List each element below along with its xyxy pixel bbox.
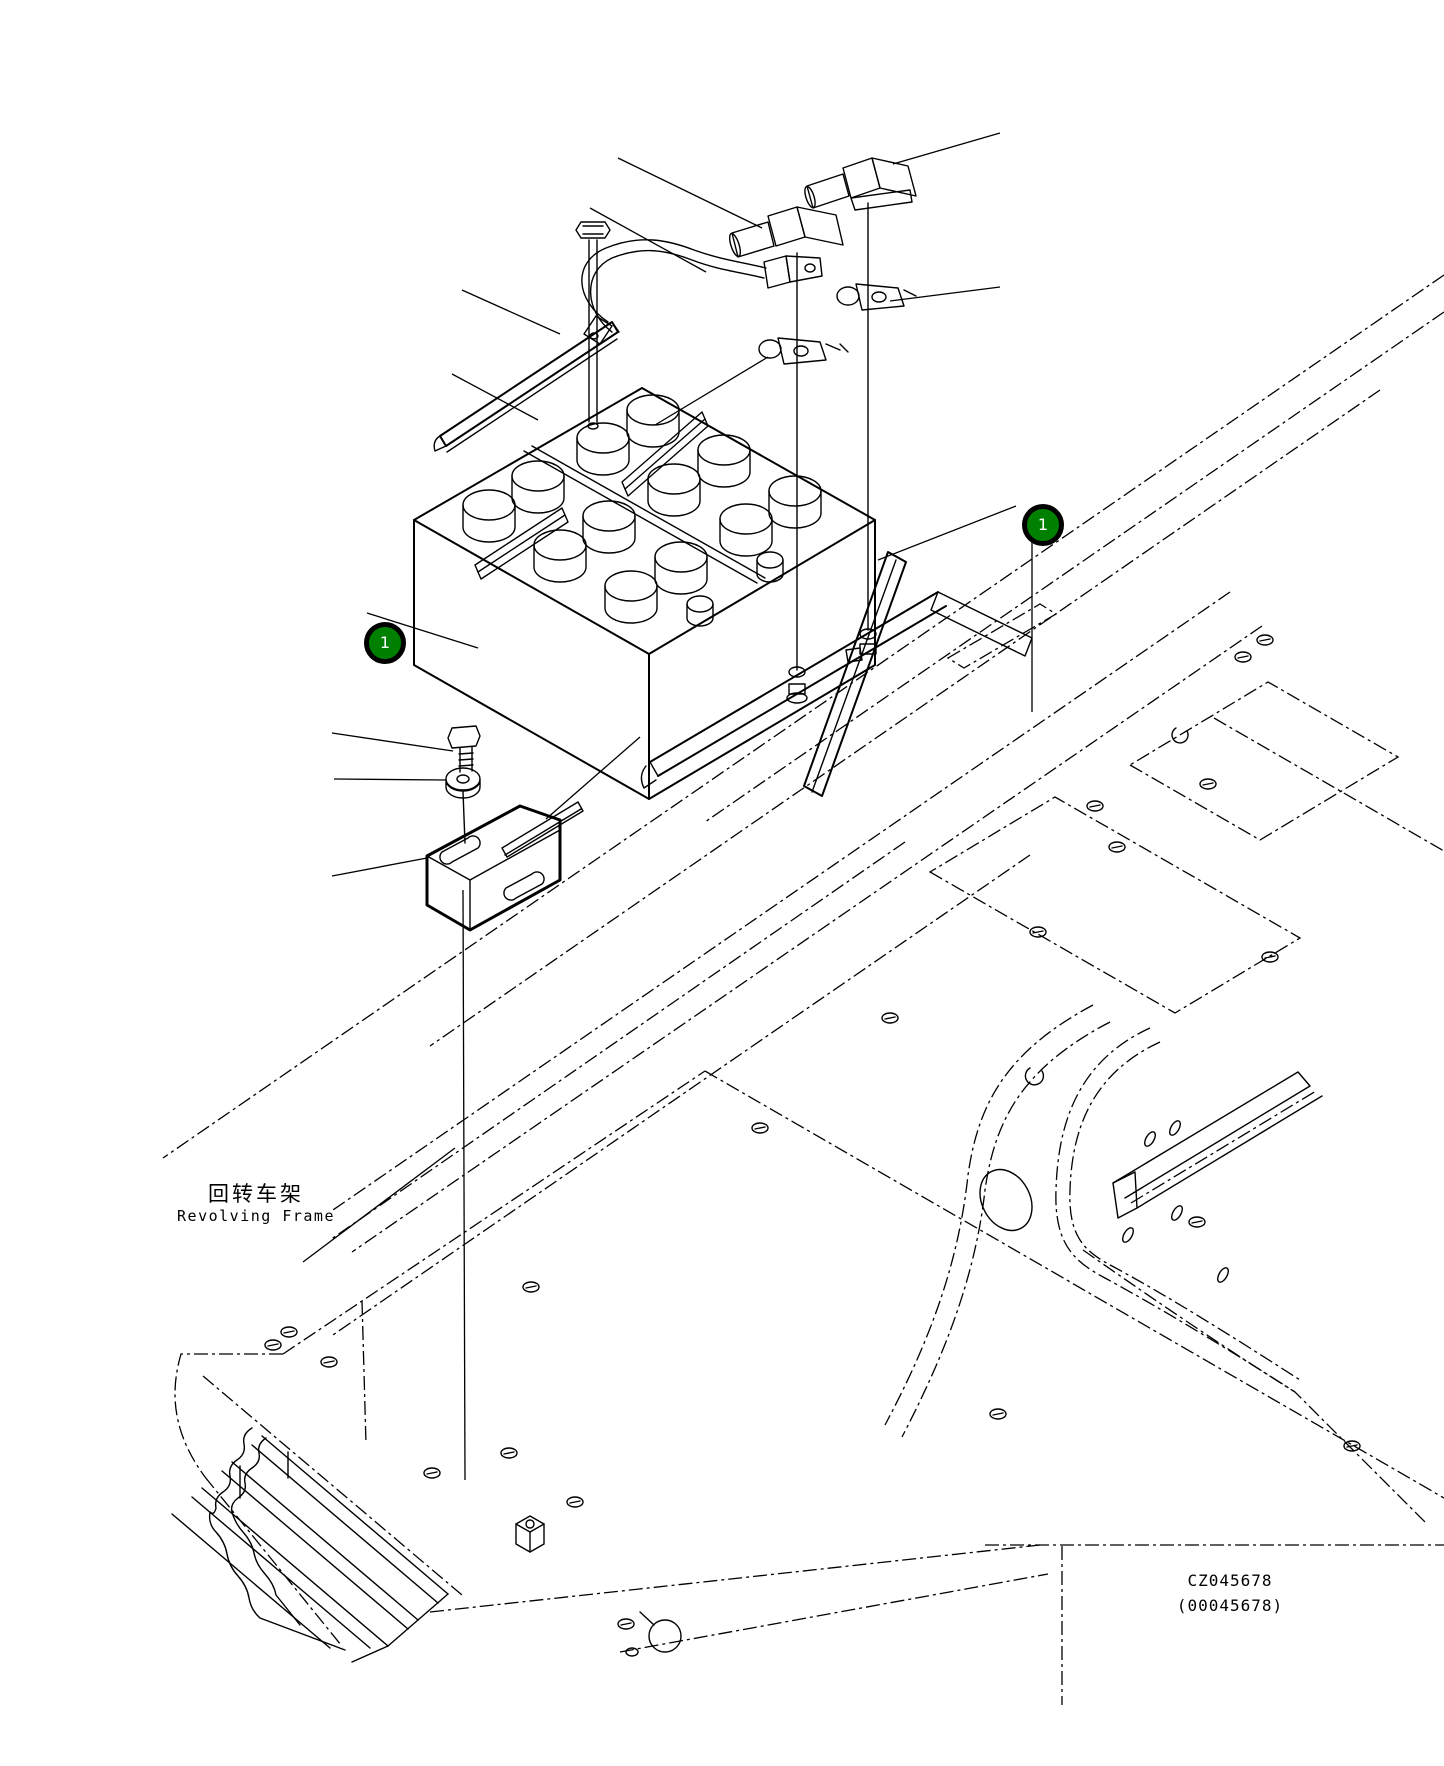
frame-bolt-holes: [265, 635, 1360, 1629]
drawing-code-alt: (00045678): [1120, 1593, 1340, 1618]
battery-handle: [475, 508, 568, 579]
diagram-canvas: [0, 0, 1444, 1766]
mount-bolt: [448, 726, 480, 772]
frame-hole: [970, 1160, 1042, 1239]
frame-label: 回转车架 Revolving Frame: [150, 1182, 362, 1226]
angle-bar: [434, 322, 619, 452]
terminal-boot: [803, 158, 916, 210]
terminal-clamp: [837, 284, 916, 310]
frame-nut-block: [516, 1516, 544, 1552]
bracket-position-leader: [463, 890, 465, 1480]
frame-steps: [172, 1428, 448, 1662]
hold-down-frame: [641, 592, 1032, 788]
battery-terminal-post: [687, 596, 713, 626]
drawing-code-block: CZ045678 (00045678): [1120, 1568, 1340, 1618]
parts-diagram-page: 1 1 回转车架 Revolving Frame CZ045678 (00045…: [0, 0, 1444, 1766]
curved-frame-member: [885, 1005, 1300, 1437]
battery-box: [414, 388, 875, 799]
frame-wire-loop: [626, 1612, 681, 1656]
balloon1-leader: [878, 506, 1016, 560]
deck-plate: [948, 604, 1056, 668]
frame-label-chinese: 回转车架: [150, 1182, 362, 1206]
terminal-clamp: [759, 338, 848, 364]
deck-plate: [1130, 682, 1398, 840]
revolving-frame: [163, 275, 1444, 1662]
hold-down-wires: [787, 203, 876, 703]
side-plate: [804, 552, 906, 796]
battery-cable: [582, 240, 822, 344]
drawing-code: CZ045678: [1120, 1568, 1340, 1593]
callout-balloon-2[interactable]: 1: [364, 622, 406, 664]
frame-label-english: Revolving Frame: [150, 1206, 362, 1226]
callout-balloon-1[interactable]: 1: [1022, 504, 1064, 546]
battery-assembly: [414, 158, 1032, 930]
leader-lines: [303, 133, 1032, 1480]
terminal-boot: [727, 207, 843, 258]
frame-top-edge: [163, 275, 1444, 1158]
frame-front-corner: [175, 1354, 283, 1477]
battery-handle: [622, 412, 708, 496]
deck-plate: [930, 797, 1300, 1013]
